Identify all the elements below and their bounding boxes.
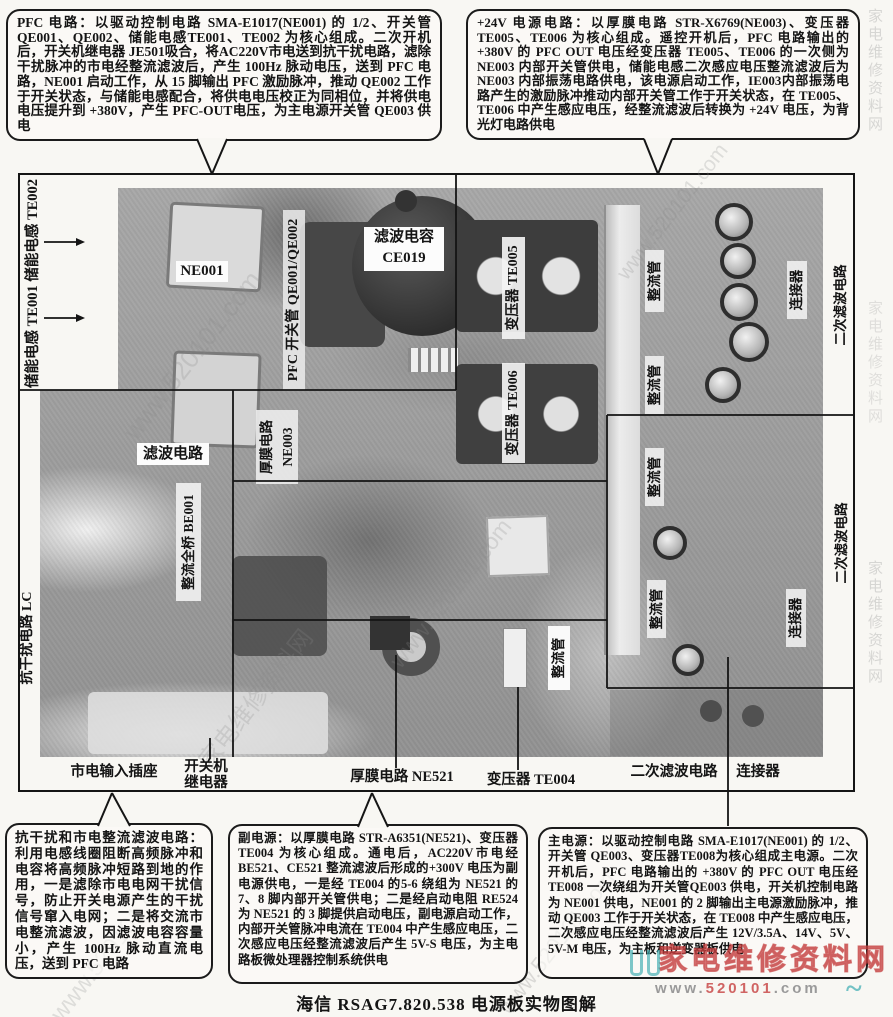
label-te004: 变压器 TE004 xyxy=(481,771,581,789)
label-thickfilm-ne003-line2: NE003 xyxy=(277,410,298,484)
label-relay-line2: 继电器 xyxy=(179,775,233,791)
label-rectifier-5: 整流管 xyxy=(548,626,570,690)
label-mains-input: 市电输入插座 xyxy=(62,763,166,781)
callout-pfc-circuit: PFC 电路：以驱动控制电路 SMA-E1017(NE001) 的 1/2、开关… xyxy=(6,9,442,141)
label-filter-cap-line1: 滤波电容 xyxy=(364,227,444,248)
scanned-diagram-page: www.520101.com www.520101.com www.520101… xyxy=(0,0,893,1017)
label-filter-circuit: 滤波电路 xyxy=(137,443,209,465)
watermark-right-edge: 家电维修资料网 xyxy=(864,560,885,686)
callout-aux-power: 副电源：以厚膜电路 STR-A6351(NE521)、变压器 TE004 为核心… xyxy=(228,824,528,984)
label-relay-line1: 开关机 xyxy=(179,759,233,775)
label-rectifier-2: 整流管 xyxy=(645,356,664,414)
page-caption: 海信 RSAG7.820.538 电源板实物图解 xyxy=(0,990,893,1015)
label-filter-cap-line2: CE019 xyxy=(364,248,444,269)
label-ne001: NE001 xyxy=(176,261,228,282)
label-bridge-be001: 整流全桥 BE001 xyxy=(176,483,201,601)
label-filter-cap-ce019: 滤波电容 CE019 xyxy=(364,227,444,271)
bubble-pointer-top-right xyxy=(644,138,672,174)
label-transformer-te006: 变压器 TE006 xyxy=(502,363,525,463)
callout-main-power: 主电源：以驱动控制电路 SMA-E1017(NE001) 的 1/2、开关管 Q… xyxy=(538,827,868,979)
watermark-right-edge: 家电维修资料网 xyxy=(864,300,885,426)
callout-emi-filter: 抗干扰和市电整流滤波电路：利用电感线圈阻断高频脉冲和电容将高频脉冲短路到地的作用… xyxy=(5,823,213,979)
label-pfc-switch: PFC 开关管 QE001/QE002 xyxy=(283,210,305,390)
label-storage-inductors: 储能电感 TE001 储能电感 TE002 xyxy=(21,180,45,388)
label-connector-bottom: 连接器 xyxy=(733,763,783,781)
label-secondary-filter-bottom: 二次滤波电路 xyxy=(626,763,722,781)
label-rectifier-1: 整流管 xyxy=(645,250,664,312)
label-thickfilm-ne003: 厚膜电路 NE003 xyxy=(256,410,298,484)
label-ne521: 厚膜电路 NE521 xyxy=(346,768,458,786)
bubble-pointer-top-left xyxy=(197,138,227,174)
label-connector-right-lower: 连接器 xyxy=(786,589,806,647)
bubble-pointer-bottom-middle xyxy=(358,793,388,828)
label-thickfilm-ne003-line1: 厚膜电路 xyxy=(256,410,277,484)
label-transformer-te005: 变压器 TE005 xyxy=(502,237,525,339)
label-emi-lc: 抗干扰电路 LC xyxy=(17,586,39,690)
label-rectifier-3: 整流管 xyxy=(645,448,664,506)
label-secondary-filter-right-upper: 二次滤波电路 xyxy=(831,254,851,356)
label-connector-right-upper: 连接器 xyxy=(787,261,807,319)
label-rectifier-4: 整流管 xyxy=(647,580,666,638)
bubble-pointer-bottom-left xyxy=(98,793,130,827)
label-relay: 开关机 继电器 xyxy=(179,759,233,791)
label-secondary-filter-right-lower: 二次滤波电路 xyxy=(832,494,852,592)
watermark-right-edge: 家电维修资料网 xyxy=(864,8,885,134)
callout-24v-power: +24V 电源电路：以厚膜电路 STR-X6769(NE003)、变压器TE00… xyxy=(466,9,860,140)
